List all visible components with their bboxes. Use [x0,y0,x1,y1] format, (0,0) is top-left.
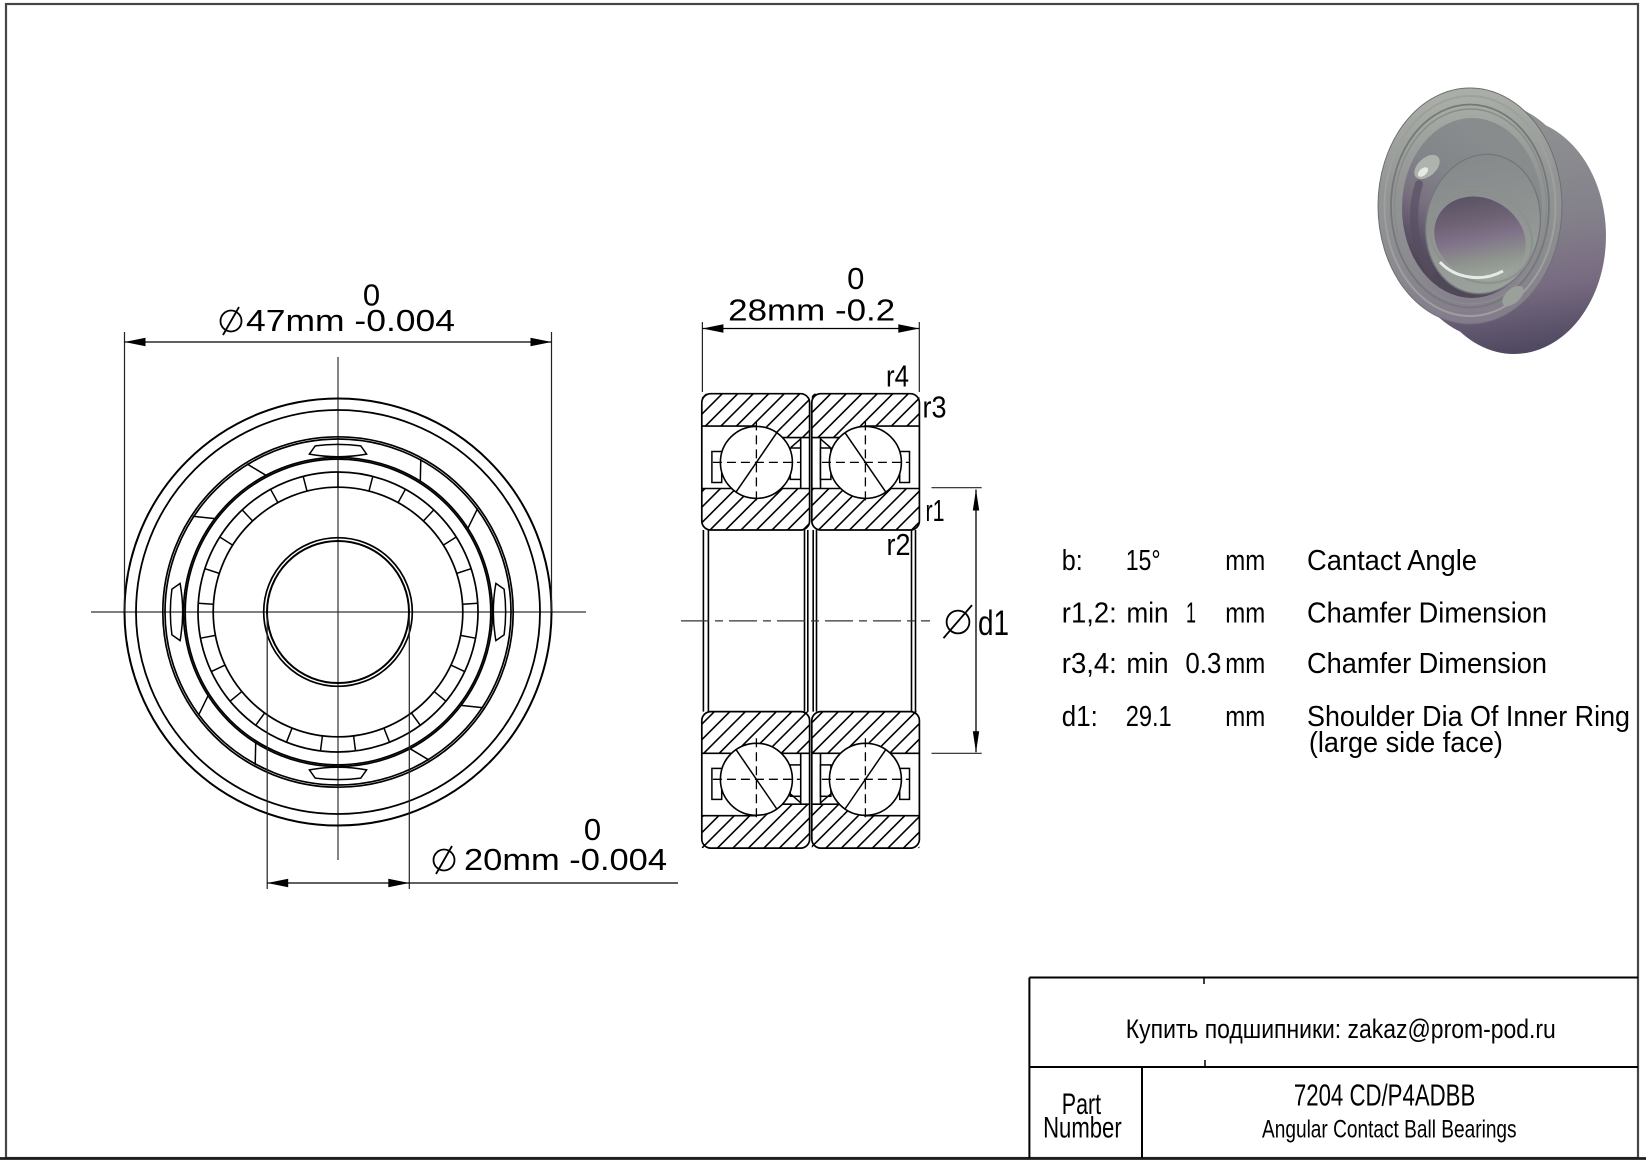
svg-text:r3: r3 [923,389,947,424]
svg-text:29.1: 29.1 [1126,701,1172,733]
svg-text:Cantact Angle: Cantact Angle [1307,545,1477,577]
svg-text:mm: mm [1225,545,1265,577]
svg-text:Number: Number [1043,1111,1122,1144]
svg-text:1: 1 [1186,598,1196,630]
svg-text:Chamfer Dimension: Chamfer Dimension [1307,648,1547,680]
svg-text:(large side face): (large side face) [1309,727,1503,759]
svg-text:28mm -0.2: 28mm -0.2 [728,293,895,328]
svg-text:r1: r1 [926,493,945,528]
svg-text:r4: r4 [886,358,909,393]
svg-text:d1: d1 [978,604,1009,643]
svg-text:r3,4:: r3,4: [1062,648,1117,680]
svg-text:min: min [1127,598,1169,630]
svg-text:47mm -0.004: 47mm -0.004 [246,303,455,338]
svg-text:min: min [1127,648,1169,680]
svg-text:d1:: d1: [1062,701,1098,733]
svg-text:7204 CD/P4ADBB: 7204 CD/P4ADBB [1294,1078,1475,1113]
svg-text:15°: 15° [1126,545,1161,577]
svg-text:Chamfer Dimension: Chamfer Dimension [1307,598,1547,630]
svg-text:20mm -0.004: 20mm -0.004 [464,842,667,877]
svg-text:0: 0 [847,261,864,296]
svg-text:0.3: 0.3 [1185,648,1221,680]
svg-text:b:: b: [1062,545,1083,577]
svg-text:Купить подшипники: zakaz@prom-: Купить подшипники: zakaz@prom-pod.ru [1126,1014,1556,1044]
svg-text:mm: mm [1225,648,1265,680]
svg-text:r1,2:: r1,2: [1062,598,1117,630]
svg-text:mm: mm [1225,701,1265,733]
svg-text:r2: r2 [887,527,911,562]
svg-text:Angular Contact Ball Bearings: Angular Contact Ball Bearings [1262,1115,1517,1143]
svg-text:mm: mm [1225,598,1265,630]
